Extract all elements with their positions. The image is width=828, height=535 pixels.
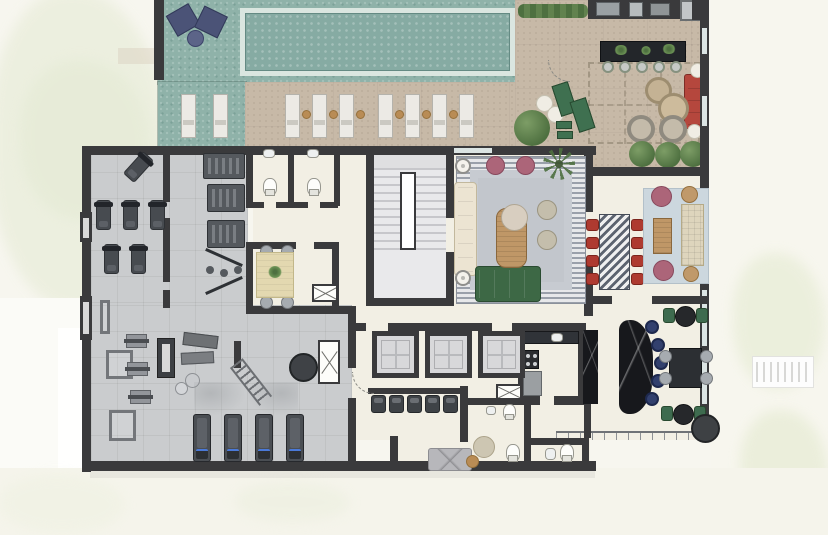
background-window-mullions (756, 362, 810, 382)
wall-spin-divider (163, 150, 170, 202)
area-restrooms-lower (455, 395, 590, 465)
area-meeting-room (252, 248, 332, 308)
area-staircase (370, 150, 452, 300)
window (452, 148, 492, 153)
weight-machine (207, 184, 245, 212)
dumbbell-rack (202, 252, 246, 296)
lawn-patch (235, 482, 350, 522)
floor-plan (0, 0, 828, 535)
area-reading-lounge (455, 155, 585, 305)
area-restrooms-upper (252, 150, 336, 204)
area-kitchen (520, 328, 584, 398)
weight-machine (207, 220, 245, 248)
area-terrace-lounge (516, 0, 702, 168)
area-fitness-room (91, 306, 349, 462)
area-pool-deck (158, 0, 248, 150)
wall-stub-sofa (390, 436, 398, 471)
lawn-patch (0, 475, 125, 533)
window (702, 96, 707, 126)
area-dining-room (592, 175, 704, 295)
building-shadow (90, 470, 595, 478)
area-pool (240, 8, 515, 76)
column-inner (83, 302, 89, 334)
area-sun-deck (248, 82, 516, 148)
window (702, 28, 707, 54)
area-spinning-studio (91, 150, 163, 306)
weight-machine (203, 153, 245, 179)
column-inner (83, 218, 89, 238)
wall-dining-bottom (652, 296, 708, 304)
